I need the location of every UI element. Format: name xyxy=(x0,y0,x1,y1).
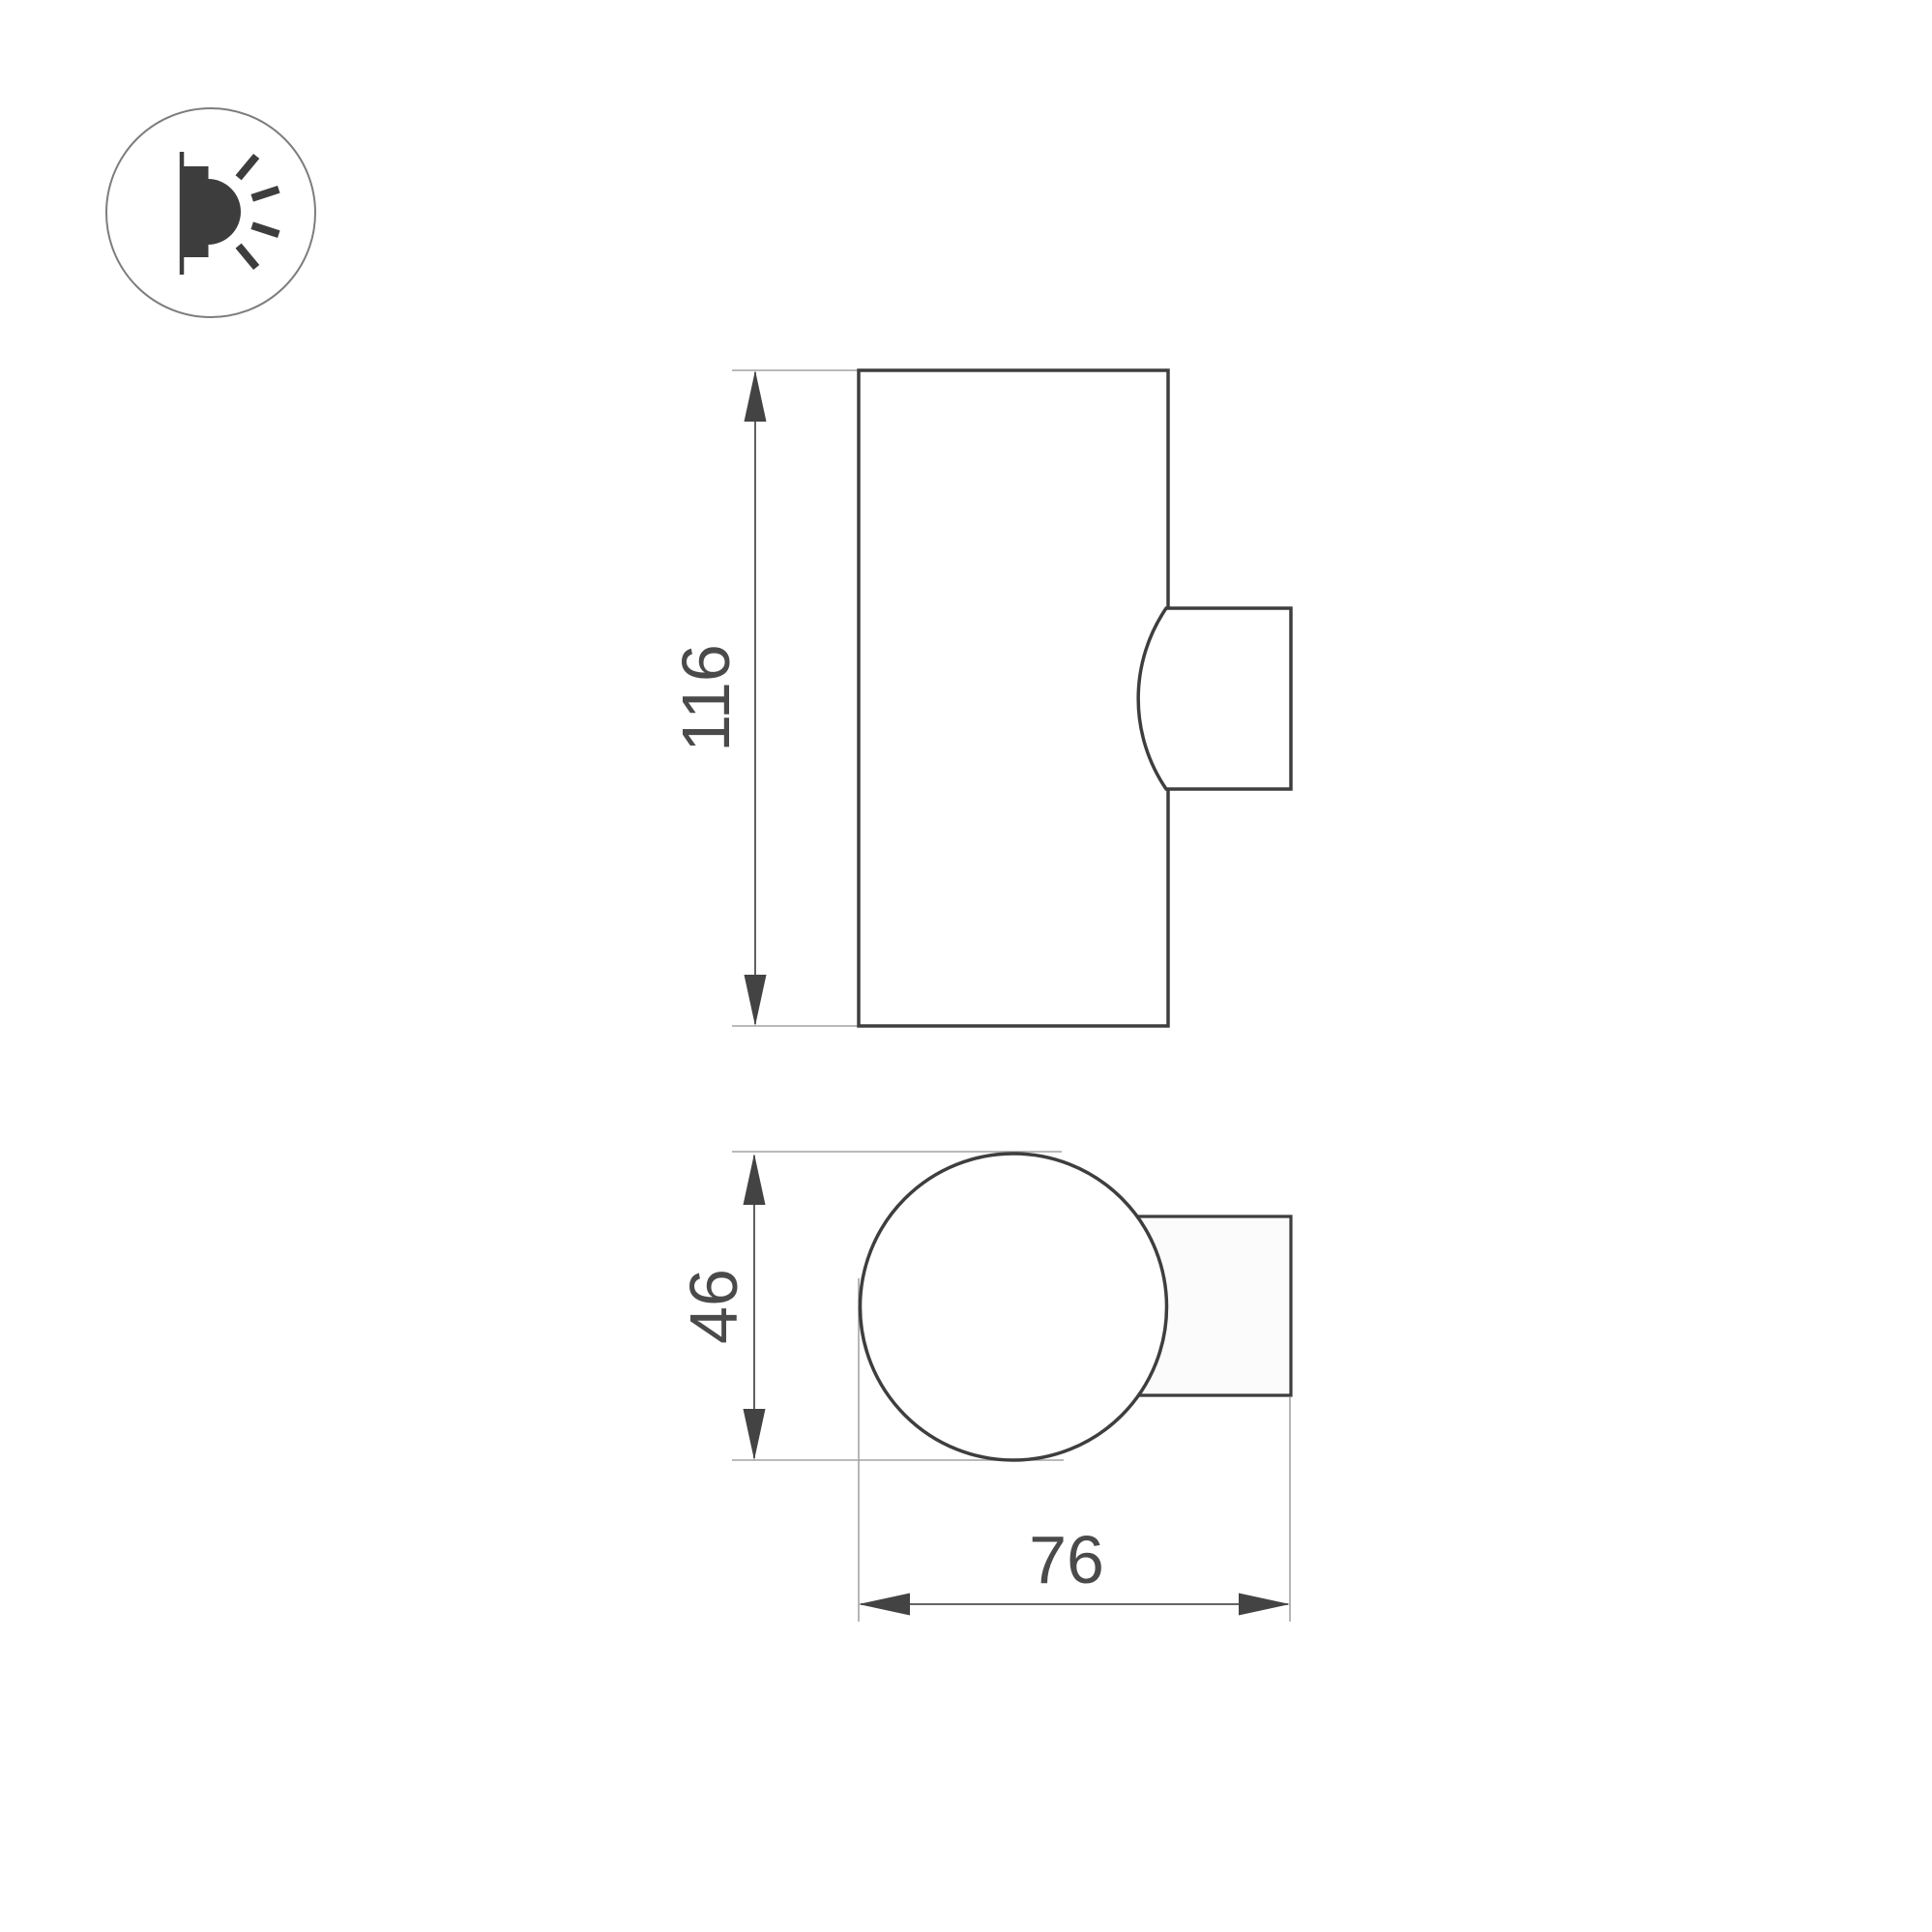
mount-bracket-side-view xyxy=(1138,608,1291,789)
top-view xyxy=(861,1154,1292,1460)
side-view xyxy=(859,370,1291,1026)
icon-lamp-body xyxy=(183,166,209,257)
diameter-dimension-label: 46 xyxy=(676,1269,751,1344)
arrowhead-left-icon xyxy=(859,1594,910,1616)
arrowhead-right-icon xyxy=(1239,1594,1290,1616)
arrowhead-down-icon xyxy=(744,1409,766,1460)
lamp-cylinder-side-view xyxy=(859,370,1168,1026)
arrowhead-up-icon xyxy=(745,370,767,422)
width-dimension-label: 76 xyxy=(1029,1522,1104,1597)
mount-bracket-fill xyxy=(1137,1216,1291,1395)
height-dimension-label: 116 xyxy=(668,644,744,752)
wall-lamp-icon xyxy=(106,108,315,317)
arrowhead-down-icon xyxy=(745,975,767,1026)
wall-lamp-dimension-drawing: 116 46 76 xyxy=(0,0,1932,1932)
technical-drawing-page: 116 46 76 xyxy=(0,0,1932,1932)
lamp-circle-top-view xyxy=(861,1154,1167,1460)
arrowhead-up-icon xyxy=(744,1154,766,1205)
